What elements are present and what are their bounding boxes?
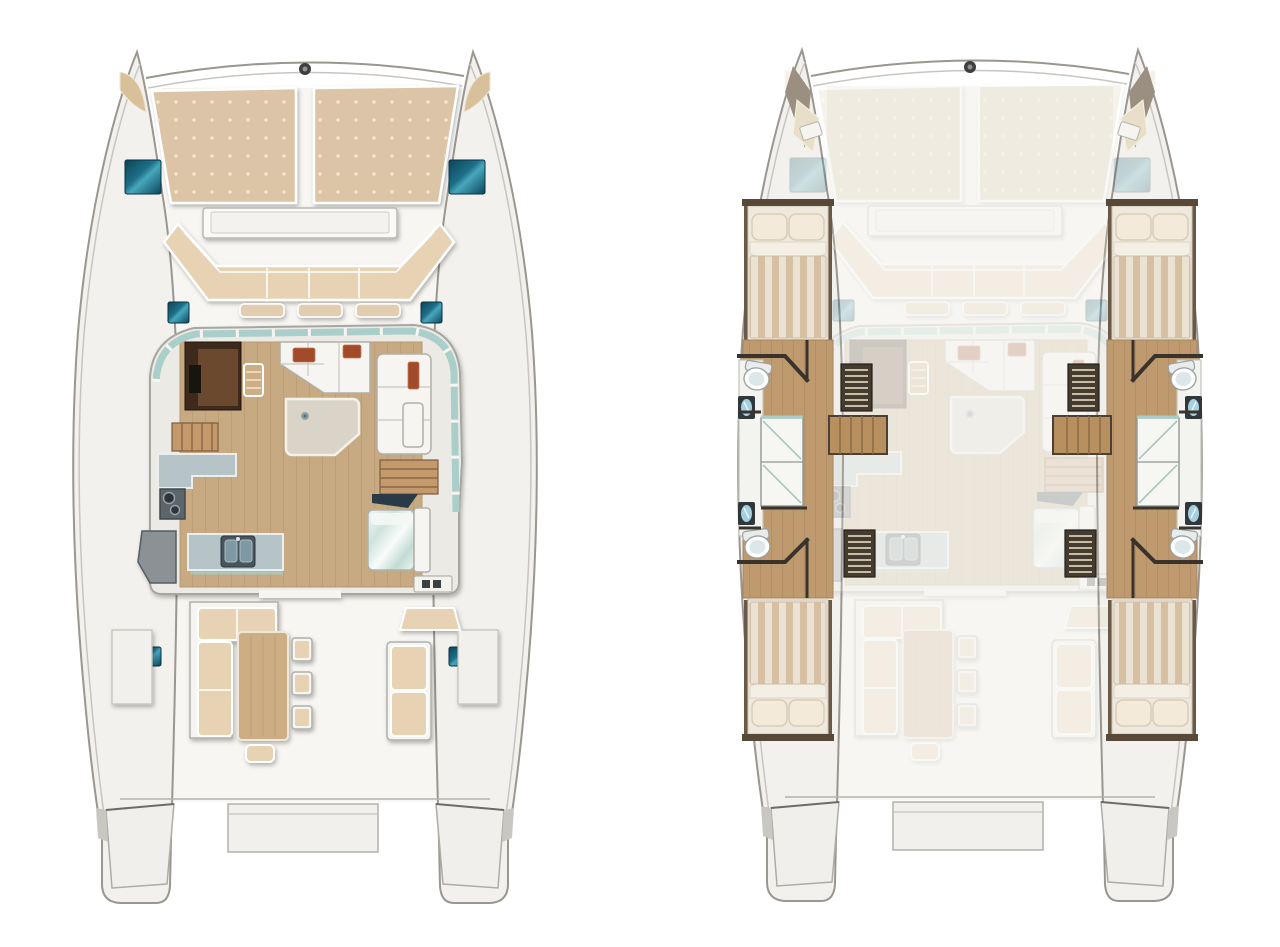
lower-deck-plan	[738, 50, 1202, 901]
floor-plan-canvas	[0, 0, 1280, 947]
catamaran-deck-plans	[0, 0, 1280, 947]
main-deck-plan	[73, 52, 537, 903]
